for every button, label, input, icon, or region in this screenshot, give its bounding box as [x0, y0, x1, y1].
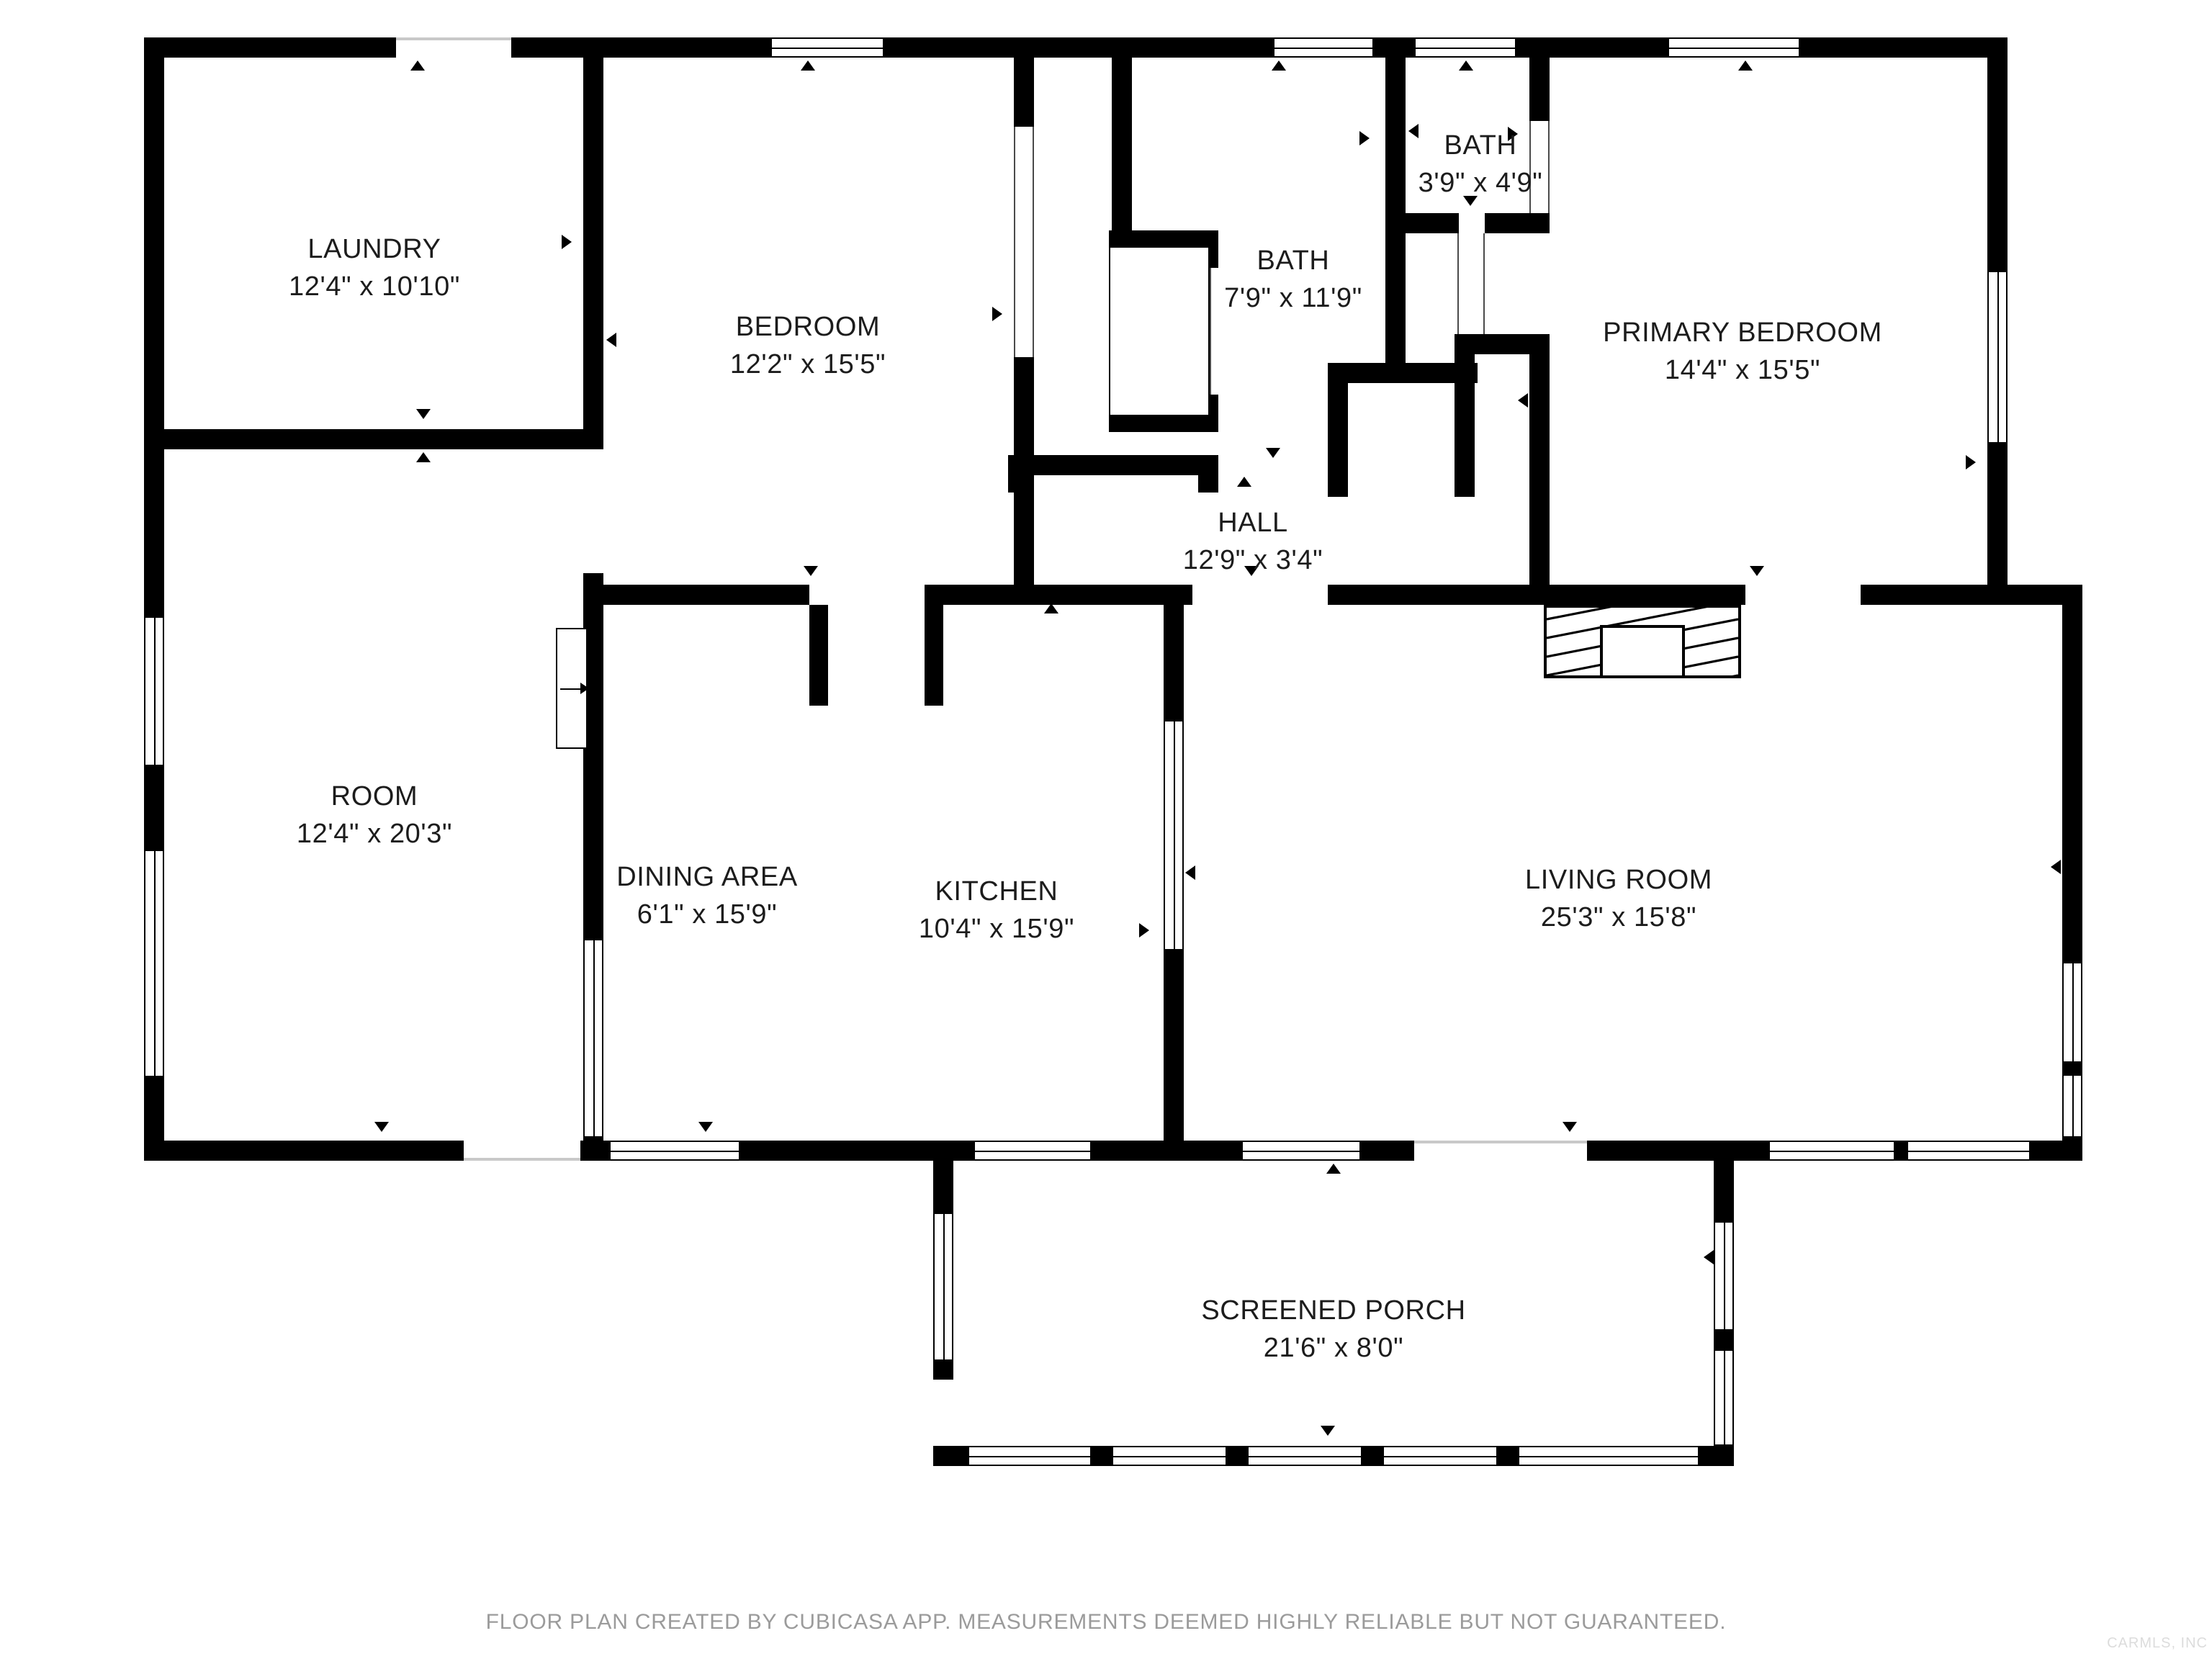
opening-threshold-line [464, 1158, 580, 1161]
wall [511, 37, 770, 58]
door-arrow [1044, 603, 1058, 613]
wall [1109, 415, 1218, 432]
room-name: PRIMARY BEDROOM [1603, 315, 1882, 353]
room-label-laundry: LAUNDRY 12'4" x 10'10" [289, 232, 460, 307]
wall [1362, 1446, 1382, 1466]
room-name: DINING AREA [616, 860, 798, 897]
door-arrow [1459, 60, 1473, 71]
door-arrow [410, 60, 425, 71]
floor-plan-canvas: LAUNDRY 12'4" x 10'10" BEDROOM 12'2" x 1… [0, 0, 2212, 1659]
wall [144, 37, 396, 58]
door-arrow [1185, 866, 1195, 880]
wall [2008, 585, 2082, 605]
room-dims: 14'4" x 15'5" [1603, 353, 1882, 390]
window-glyph [1241, 1141, 1361, 1161]
room-label-bath-small: BATH 3'9" x 4'9" [1419, 128, 1543, 203]
room-name: LIVING ROOM [1525, 863, 1712, 900]
wall [1164, 950, 1184, 1141]
room-label-living-room: LIVING ROOM 25'3" x 15'8" [1525, 863, 1712, 938]
wall [925, 605, 943, 706]
window-glyph [1382, 1446, 1498, 1466]
wall [740, 1141, 974, 1161]
window-glyph [1907, 1141, 2031, 1161]
room-label-screened-porch: SCREENED PORCH 21'6" x 8'0" [1201, 1293, 1465, 1368]
window-glyph [1112, 1446, 1227, 1466]
wall [1227, 1446, 1247, 1466]
room-dims: 12'9" x 3'4" [1183, 543, 1323, 580]
wall [2031, 1141, 2082, 1161]
wall [1455, 334, 1475, 497]
door-arrow [1738, 60, 1753, 71]
window-glyph [2062, 1074, 2082, 1138]
room-name: HALL [1183, 505, 1323, 543]
wall [1372, 37, 1416, 58]
door-arrow [374, 1122, 389, 1132]
window-glyph [1668, 37, 1800, 58]
window-glyph [144, 616, 164, 766]
door-arrow [1272, 60, 1286, 71]
window-glyph [1714, 1221, 1734, 1331]
wall [925, 585, 1192, 605]
room-dims: 6'1" x 15'9" [616, 897, 798, 935]
door-arrow [1359, 131, 1370, 145]
door-arrow [804, 566, 818, 576]
room-dims: 12'4" x 20'3" [297, 817, 452, 854]
wall [1800, 37, 2008, 58]
room-name: ROOM [297, 779, 452, 817]
wall [1361, 1141, 1414, 1161]
wall [2062, 1063, 2082, 1074]
room-dims: 3'9" x 4'9" [1419, 166, 1543, 203]
opening-threshold-line [1414, 1141, 1587, 1143]
window-glyph [1247, 1446, 1362, 1466]
door-arrow [1750, 566, 1764, 576]
wall [1164, 605, 1184, 720]
room-name: SCREENED PORCH [1201, 1293, 1465, 1331]
page: LAUNDRY 12'4" x 10'10" BEDROOM 12'2" x 1… [0, 0, 2212, 1659]
door-arrow [1326, 1164, 1341, 1174]
wall [809, 605, 828, 706]
wall [1092, 1141, 1241, 1161]
window-glyph [609, 1141, 740, 1161]
wall [1092, 1446, 1112, 1466]
wall [1485, 213, 1550, 233]
door-arrow [2051, 860, 2061, 874]
wall [933, 1446, 968, 1466]
window-glyph [770, 37, 884, 58]
room-label-bedroom: BEDROOM 12'2" x 15'5" [730, 310, 886, 385]
wall [1498, 1446, 1518, 1466]
door-swing-arrow [560, 688, 580, 690]
room-name: LAUNDRY [289, 232, 460, 269]
window-glyph [1714, 1349, 1734, 1446]
wall [603, 585, 809, 605]
door-arrow [1139, 923, 1149, 938]
wall [933, 1161, 953, 1213]
door-arrow [416, 452, 431, 462]
wall [1714, 1331, 1734, 1349]
room-dims: 12'2" x 15'5" [730, 347, 886, 385]
door-arrow [1704, 1250, 1714, 1264]
room-dims: 21'6" x 8'0" [1201, 1331, 1465, 1368]
wall [1895, 1141, 1907, 1161]
door-arrow [1966, 455, 1976, 469]
door-arrow [992, 307, 1002, 321]
door-arrow [1266, 448, 1280, 458]
fireplace-firebox [1600, 625, 1685, 678]
wall-opening [1457, 233, 1485, 334]
wall [1455, 334, 1550, 354]
wall [1987, 444, 2008, 585]
room-name: BATH [1224, 243, 1362, 281]
window-glyph [2062, 962, 2082, 1063]
wall [933, 1361, 953, 1380]
wall [144, 429, 603, 449]
door-leaf [556, 628, 588, 749]
wall [583, 1138, 603, 1161]
door-arrow [1237, 477, 1251, 487]
door-arrow [1563, 1122, 1577, 1132]
door-arrow [416, 409, 431, 419]
door-arrow [562, 235, 572, 249]
wall [583, 37, 603, 449]
room-label-bath: BATH 7'9" x 11'9" [1224, 243, 1362, 318]
window-glyph [1768, 1141, 1895, 1161]
opening-threshold-line [396, 37, 511, 40]
wall [1014, 357, 1034, 605]
room-dims: 10'4" x 15'9" [919, 912, 1074, 949]
window-glyph [1987, 271, 2008, 444]
window-glyph [968, 1446, 1092, 1466]
room-name: BEDROOM [730, 310, 886, 347]
wall [1587, 1141, 1768, 1161]
room-label-kitchen: KITCHEN 10'4" x 15'9" [919, 874, 1074, 949]
wall [1516, 37, 1668, 58]
watermark: CARMLS, INC [2107, 1636, 2208, 1652]
wall [1987, 37, 2008, 271]
room-label-room: ROOM 12'4" x 20'3" [297, 779, 452, 854]
wall [1699, 1446, 1734, 1466]
door-arrow [801, 60, 815, 71]
window-glyph [1273, 37, 1378, 58]
window-glyph [933, 1213, 953, 1361]
window-glyph [583, 939, 603, 1138]
window-glyph [1414, 37, 1516, 58]
room-name: BATH [1419, 128, 1543, 166]
wall [2062, 585, 2082, 962]
wall [144, 766, 164, 850]
door-arrow [606, 333, 616, 347]
wall [884, 37, 1273, 58]
wall-opening [1014, 127, 1034, 357]
door-arrow [1518, 393, 1528, 408]
window-glyph [1164, 720, 1184, 950]
room-dims: 12'4" x 10'10" [289, 269, 460, 307]
window-glyph [1518, 1446, 1699, 1466]
room-name: KITCHEN [919, 874, 1074, 912]
window-glyph [144, 850, 164, 1077]
wall [1112, 58, 1132, 248]
footer-disclaimer: FLOOR PLAN CREATED BY CUBICASA APP. MEAS… [0, 1610, 2212, 1635]
door-arrow [698, 1122, 713, 1132]
wall [1008, 455, 1218, 475]
door-arrow [1321, 1426, 1335, 1436]
room-label-primary-bedroom: PRIMARY BEDROOM 14'4" x 15'5" [1603, 315, 1882, 390]
wall [144, 1141, 464, 1161]
bathtub [1109, 248, 1210, 415]
wall [1714, 1161, 1734, 1221]
room-dims: 25'3" x 15'8" [1525, 900, 1712, 938]
door-arrow [1408, 124, 1419, 138]
wall [1529, 334, 1550, 605]
wall [144, 37, 164, 616]
wall [1861, 585, 2008, 605]
room-label-dining-area: DINING AREA 6'1" x 15'9" [616, 860, 798, 935]
room-dims: 7'9" x 11'9" [1224, 281, 1362, 318]
wall [1385, 37, 1406, 383]
wall [144, 1077, 164, 1161]
window-glyph [974, 1141, 1092, 1161]
room-label-hall: HALL 12'9" x 3'4" [1183, 505, 1323, 580]
